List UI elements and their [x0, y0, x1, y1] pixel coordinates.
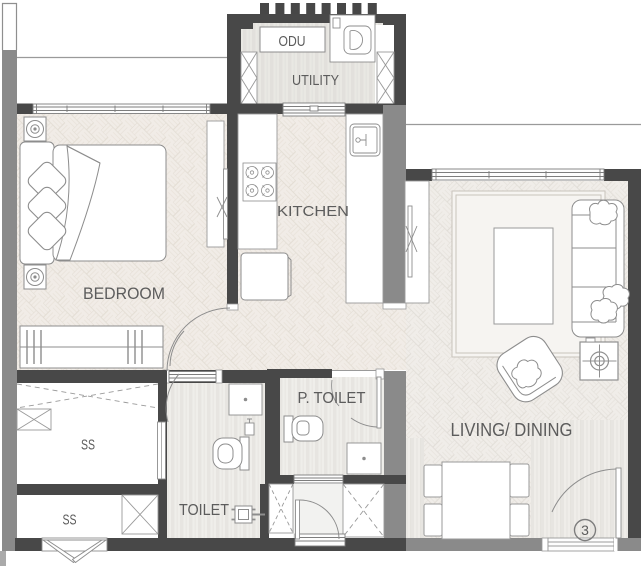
svg-text:TOILET: TOILET	[179, 502, 229, 519]
svg-text:P. TOILET: P. TOILET	[298, 390, 367, 407]
svg-text:SS: SS	[63, 513, 77, 529]
svg-text:ODU: ODU	[279, 33, 306, 50]
svg-text:UTILITY: UTILITY	[292, 72, 339, 89]
svg-text:3: 3	[581, 522, 589, 538]
svg-text:BEDROOM: BEDROOM	[83, 284, 165, 303]
svg-text:SS: SS	[81, 438, 95, 454]
svg-text:LIVING/ DINING: LIVING/ DINING	[451, 420, 573, 440]
svg-text:KITCHEN: KITCHEN	[277, 204, 349, 220]
